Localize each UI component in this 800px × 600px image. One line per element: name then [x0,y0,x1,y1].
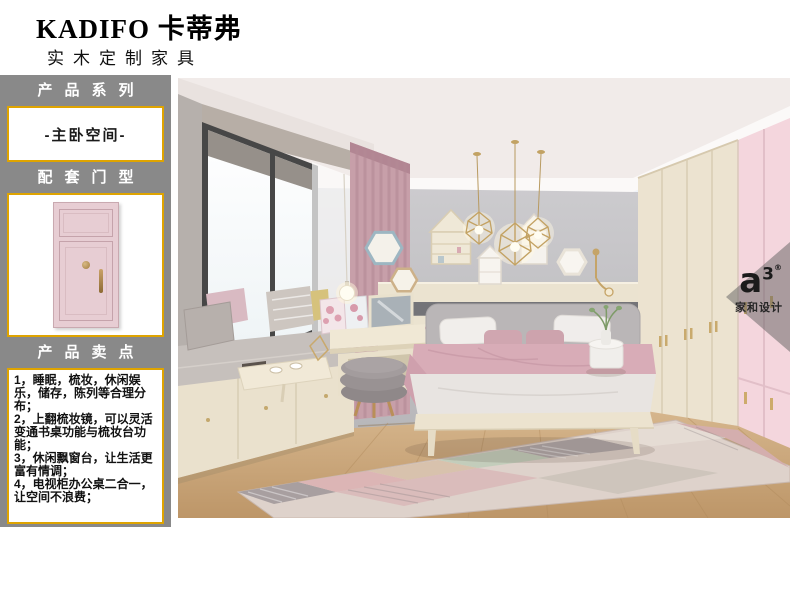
hexagon-shelf-blue [366,232,402,263]
hexagon-shelf-white [558,250,586,274]
series-value-box: -主卧空间- [7,106,164,162]
selling-point-2: 2，上翻梳妆镜，可以灵活变通书桌功能与梳妆台功能； [14,413,157,452]
selling-points-box: 1，睡眠，梳妆，休闲娱乐，储存，陈列等合理分布； 2，上翻梳妆镜，可以灵活变通书… [7,368,164,524]
brand-tagline: 实木定制家具 [47,44,203,69]
selling-point-3: 3，休闲飘窗台，让生活更富有情调； [14,452,157,478]
series-value: -主卧空间- [45,124,127,145]
door-handle [99,269,103,293]
door-sample-image [53,202,119,328]
series-label: 产品系列 [0,80,171,102]
watermark-reg-icon: ® [774,263,782,272]
selling-point-1: 1，睡眠，梳妆，休闲娱乐，储存，陈列等合理分布； [14,374,157,413]
door-type-label: 配套门型 [0,167,171,189]
watermark-logo: a3® [732,264,782,298]
door-drawer [59,209,113,237]
selling-points-label: 产品卖点 [0,342,171,364]
teacup [270,367,282,373]
bedroom-render: a3® 家和设计 [178,78,790,518]
selling-point-4: 4，电视柜办公桌二合一，让空间不浪费； [14,478,157,504]
bed-frame [414,412,654,430]
door-knob [82,261,90,269]
brand-logo: KADIFO 卡蒂弗 [36,7,242,46]
vanity-mirror [370,294,412,329]
watermark-brand: 家和设计 [730,299,788,315]
door-image-box [7,193,164,337]
bedroom-scene [178,78,790,518]
watermark-logo-letter: a [739,261,762,301]
hexagon-shelf-gold [391,269,417,292]
sidebar: 产品系列 -主卧空间- 配套门型 产品卖点 1，睡眠，梳妆，休闲娱乐，储存，陈列… [0,75,171,527]
watermark-logo-sup: 3 [762,265,774,285]
door-panel [59,241,113,321]
